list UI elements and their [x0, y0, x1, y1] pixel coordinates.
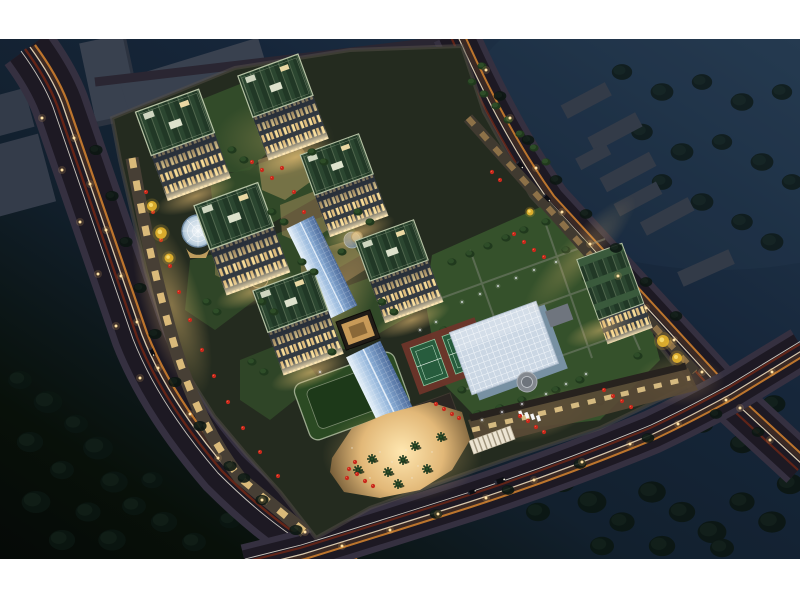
yellow-lit-tree [145, 199, 160, 214]
letterbox-top [0, 0, 800, 39]
yellow-lit-tree [152, 224, 169, 241]
yellow-lit-tree [162, 251, 176, 265]
scene [0, 0, 800, 573]
letterbox-bottom [0, 559, 800, 600]
yellow-lit-tree [654, 332, 672, 350]
round-plaza-center [522, 377, 533, 388]
night-aerial-rendering [0, 0, 800, 600]
yellow-lit-tree [525, 207, 536, 218]
yellow-lit-tree [670, 351, 685, 366]
rendering-stage [0, 0, 800, 600]
